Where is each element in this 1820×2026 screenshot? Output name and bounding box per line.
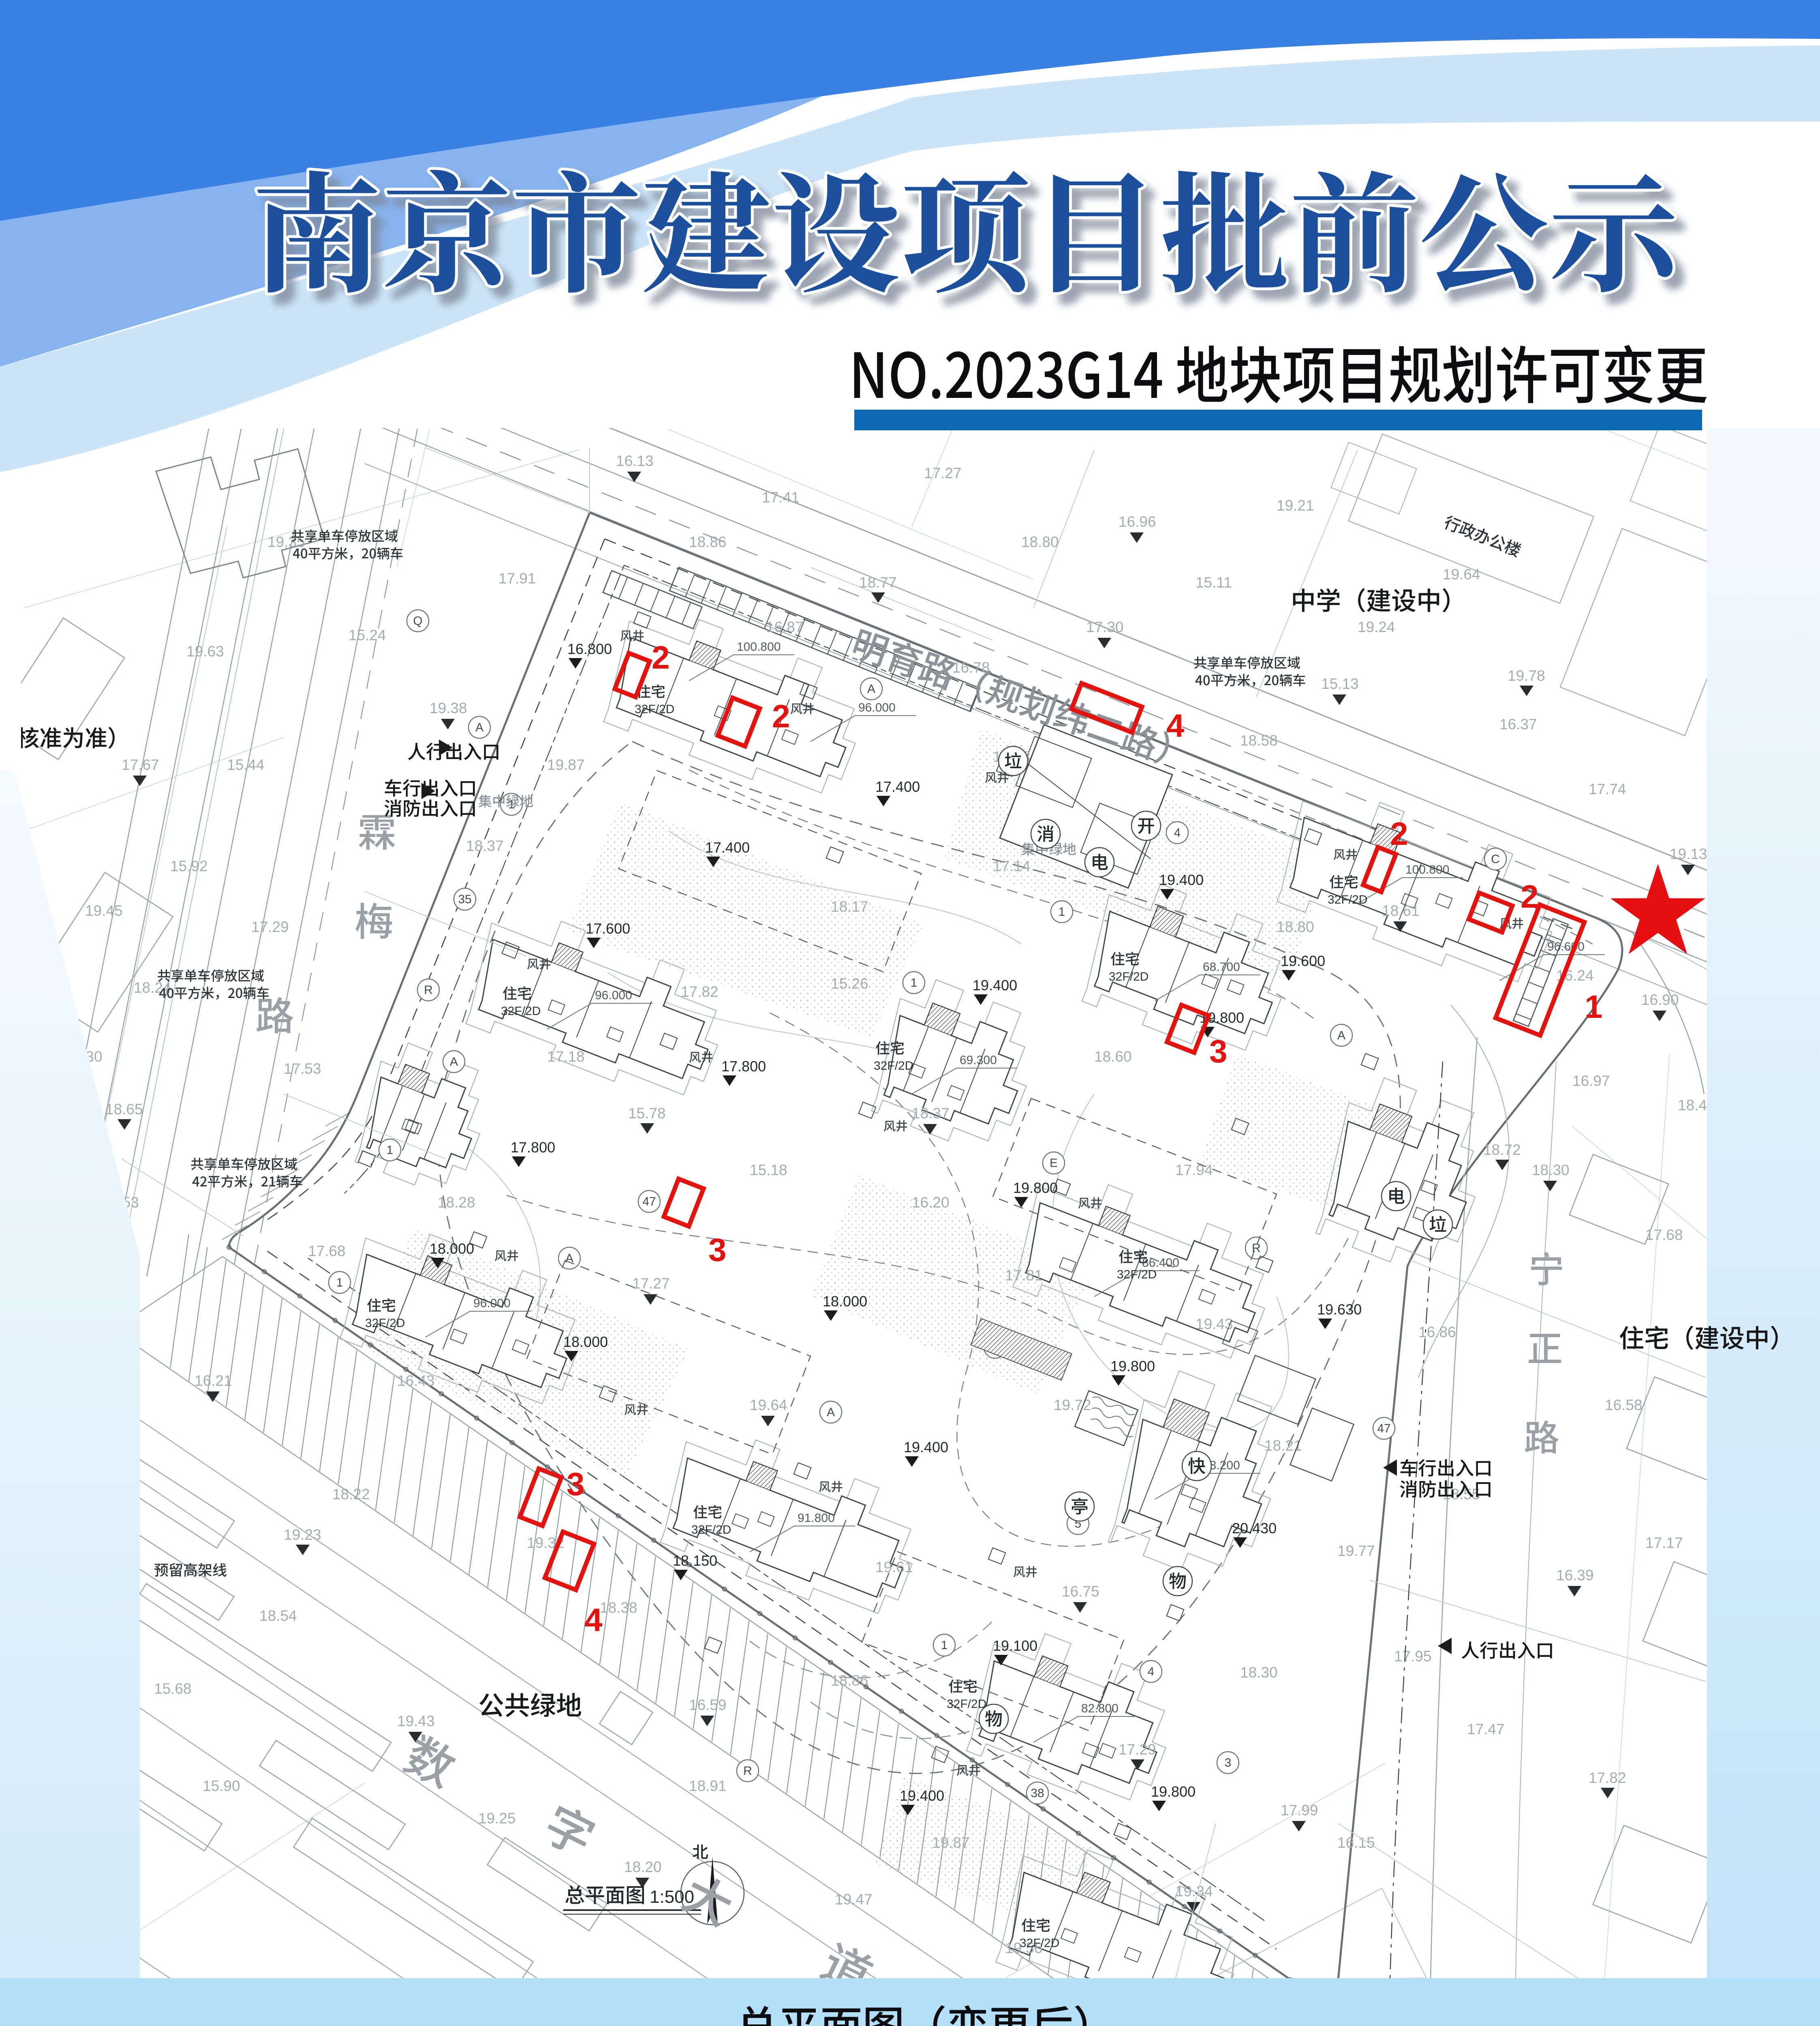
svg-text:3: 3: [1209, 1033, 1228, 1069]
svg-text:19.100: 19.100: [993, 1637, 1037, 1654]
svg-text:17.95: 17.95: [1394, 1648, 1432, 1665]
svg-text:17.14: 17.14: [993, 858, 1031, 874]
svg-text:3: 3: [1225, 1756, 1232, 1770]
svg-text:19.400: 19.400: [973, 977, 1017, 994]
svg-text:18.37: 18.37: [912, 1105, 950, 1122]
svg-text:32F/2D: 32F/2D: [635, 703, 674, 716]
svg-text:17.400: 17.400: [875, 778, 920, 795]
svg-text:17.41: 17.41: [762, 489, 800, 506]
svg-text:1: 1: [1585, 989, 1603, 1025]
svg-text:18.72: 18.72: [1483, 1141, 1521, 1158]
svg-text:18.24: 18.24: [134, 979, 171, 996]
svg-text:Q: Q: [413, 614, 422, 628]
svg-text:16.43: 16.43: [397, 1372, 435, 1389]
svg-text:4: 4: [584, 1602, 603, 1638]
svg-text:15.92: 15.92: [170, 858, 208, 874]
svg-text:16.58: 16.58: [1605, 1397, 1642, 1413]
svg-text:1: 1: [387, 1143, 394, 1157]
svg-text:A: A: [475, 721, 483, 734]
svg-text:1:500: 1:500: [650, 1887, 694, 1907]
svg-text:18.58: 18.58: [1240, 732, 1278, 749]
svg-text:18.80: 18.80: [1021, 534, 1059, 550]
svg-text:E: E: [1050, 1156, 1058, 1170]
svg-text:15.90: 15.90: [203, 1778, 240, 1794]
svg-text:18.37: 18.37: [466, 838, 504, 854]
svg-text:2: 2: [1521, 878, 1539, 915]
svg-text:32F/2D: 32F/2D: [947, 1697, 986, 1711]
svg-text:18.80: 18.80: [1277, 919, 1314, 935]
svg-text:47: 47: [1377, 1422, 1390, 1435]
svg-text:32F/2D: 32F/2D: [1328, 893, 1367, 906]
svg-text:17.27: 17.27: [924, 465, 962, 481]
svg-text:16.75: 16.75: [1062, 1583, 1099, 1600]
svg-text:17.81: 17.81: [1005, 1267, 1043, 1284]
svg-text:19.400: 19.400: [904, 1439, 948, 1455]
svg-text:100.800: 100.800: [737, 640, 781, 654]
svg-text:19.47: 19.47: [835, 1891, 873, 1908]
svg-text:A: A: [1337, 1029, 1345, 1042]
svg-text:1: 1: [336, 1276, 343, 1289]
svg-text:4: 4: [1148, 1665, 1155, 1678]
svg-text:16.87: 16.87: [766, 619, 804, 635]
svg-text:18.60: 18.60: [1094, 1048, 1132, 1065]
svg-text:19.61: 19.61: [875, 1559, 913, 1575]
svg-text:19.38: 19.38: [430, 700, 467, 716]
svg-text:16.15: 16.15: [1337, 1834, 1375, 1851]
svg-text:96.000: 96.000: [473, 1297, 511, 1310]
svg-text:32F/2D: 32F/2D: [1020, 1936, 1059, 1950]
svg-text:16.86: 16.86: [1418, 1324, 1456, 1340]
svg-text:96.000: 96.000: [858, 701, 896, 714]
svg-text:18.86: 18.86: [689, 534, 727, 550]
svg-text:19.800: 19.800: [1013, 1180, 1058, 1196]
svg-text:15.78: 15.78: [628, 1105, 666, 1122]
svg-text:17.68: 17.68: [1645, 1227, 1683, 1243]
svg-text:17.82: 17.82: [681, 983, 719, 1000]
svg-text:18.000: 18.000: [563, 1334, 608, 1350]
svg-text:20.430: 20.430: [1232, 1520, 1277, 1537]
svg-text:C: C: [1491, 853, 1500, 866]
svg-text:17.27: 17.27: [632, 1275, 670, 1292]
svg-text:18.30: 18.30: [1532, 1162, 1570, 1178]
svg-text:1: 1: [941, 1639, 948, 1652]
svg-text:16.13: 16.13: [616, 453, 654, 469]
svg-text:19.77: 19.77: [1337, 1543, 1375, 1559]
svg-text:2: 2: [1390, 816, 1408, 852]
svg-text:17.82: 17.82: [1589, 1770, 1626, 1786]
svg-text:32F/2D: 32F/2D: [1117, 1268, 1157, 1281]
svg-text:18.61: 18.61: [1382, 902, 1420, 919]
svg-text:32F/2D: 32F/2D: [1109, 970, 1148, 983]
svg-text:3: 3: [567, 1466, 585, 1502]
svg-text:A: A: [827, 1406, 835, 1419]
svg-text:16.20: 16.20: [912, 1194, 950, 1211]
svg-text:18.77: 18.77: [859, 574, 897, 591]
svg-text:18.30: 18.30: [1240, 1664, 1278, 1681]
svg-text:16.39: 16.39: [1556, 1567, 1594, 1584]
svg-text:4: 4: [1166, 707, 1185, 744]
svg-text:18.28: 18.28: [438, 1194, 475, 1211]
svg-text:17.29: 17.29: [251, 919, 289, 935]
svg-text:17.400: 17.400: [705, 839, 750, 856]
svg-text:19.600: 19.600: [1281, 953, 1325, 969]
svg-text:15.26: 15.26: [831, 975, 868, 992]
svg-text:18.000: 18.000: [430, 1240, 474, 1257]
svg-text:68.700: 68.700: [1203, 960, 1240, 974]
svg-text:18.86: 18.86: [831, 1672, 868, 1689]
svg-text:18.150: 18.150: [673, 1552, 717, 1569]
svg-text:18.000: 18.000: [823, 1293, 867, 1310]
svg-text:16.37: 16.37: [1499, 716, 1537, 733]
svg-text:17.800: 17.800: [511, 1139, 555, 1156]
svg-text:19.25: 19.25: [478, 1810, 516, 1827]
svg-text:47: 47: [642, 1195, 656, 1208]
svg-text:17.74: 17.74: [1589, 781, 1626, 797]
svg-text:18.17: 18.17: [831, 898, 868, 915]
svg-text:96.000: 96.000: [595, 989, 632, 1002]
svg-text:16.59: 16.59: [689, 1697, 727, 1713]
svg-text:17.47: 17.47: [1467, 1721, 1505, 1737]
svg-text:32F/2D: 32F/2D: [691, 1523, 731, 1537]
svg-text:32F/2D: 32F/2D: [874, 1059, 913, 1073]
svg-text:16.800: 16.800: [567, 641, 612, 657]
svg-text:19.87: 19.87: [932, 1834, 970, 1851]
svg-text:17.94: 17.94: [1175, 1162, 1213, 1178]
svg-text:82.800: 82.800: [1081, 1702, 1119, 1715]
svg-text:32F/2D: 32F/2D: [365, 1316, 405, 1330]
svg-text:17.30: 17.30: [1086, 619, 1124, 635]
svg-text:19.45: 19.45: [85, 902, 123, 919]
svg-text:19.35: 19.35: [267, 534, 305, 550]
svg-text:17.18: 17.18: [547, 1048, 585, 1065]
svg-text:19.800: 19.800: [1151, 1783, 1196, 1800]
svg-text:15.44: 15.44: [227, 757, 265, 773]
svg-text:19.34: 19.34: [1175, 1883, 1213, 1900]
svg-text:19.64: 19.64: [1443, 566, 1480, 583]
svg-text:17.600: 17.600: [586, 920, 630, 937]
svg-text:32F/2D: 32F/2D: [501, 1004, 541, 1018]
svg-text:16.90: 16.90: [1641, 992, 1679, 1008]
svg-text:38: 38: [1031, 1787, 1044, 1800]
svg-text:18.91: 18.91: [689, 1778, 727, 1794]
svg-text:15.24: 15.24: [349, 627, 386, 643]
svg-text:19.24: 19.24: [1358, 619, 1395, 635]
svg-text:R: R: [424, 983, 433, 997]
svg-text:19.21: 19.21: [1277, 497, 1314, 514]
svg-text:19.64: 19.64: [750, 1397, 787, 1413]
svg-text:16.97: 16.97: [1572, 1073, 1610, 1089]
svg-text:19.43: 19.43: [397, 1713, 435, 1729]
svg-text:2: 2: [772, 698, 790, 734]
svg-text:100.800: 100.800: [1405, 863, 1449, 876]
svg-text:19.78: 19.78: [1508, 667, 1545, 684]
svg-text:15.13: 15.13: [1321, 675, 1359, 692]
svg-text:17.29: 17.29: [1119, 1741, 1156, 1758]
svg-text:1: 1: [911, 976, 917, 989]
svg-text:19.800: 19.800: [1110, 1358, 1155, 1374]
svg-text:19.13: 19.13: [1670, 846, 1707, 862]
svg-text:1: 1: [1059, 905, 1065, 919]
svg-text:16.21: 16.21: [195, 1372, 232, 1389]
svg-text:19.400: 19.400: [900, 1787, 944, 1804]
svg-text:16.96: 16.96: [1119, 513, 1156, 530]
svg-text:R: R: [743, 1764, 752, 1778]
svg-text:19.630: 19.630: [1317, 1301, 1362, 1318]
svg-text:17.53: 17.53: [284, 1060, 321, 1077]
svg-text:15.68: 15.68: [154, 1680, 192, 1697]
svg-text:4: 4: [1174, 826, 1181, 840]
svg-text:17.99: 17.99: [1281, 1802, 1318, 1819]
svg-text:15.11: 15.11: [1196, 574, 1232, 591]
svg-text:18.22: 18.22: [332, 1486, 370, 1502]
svg-text:2: 2: [652, 639, 670, 675]
svg-text:15.18: 15.18: [750, 1162, 787, 1178]
svg-text:19.63: 19.63: [186, 643, 224, 660]
svg-text:A: A: [867, 682, 875, 696]
svg-text:35: 35: [458, 893, 471, 906]
svg-text:A: A: [450, 1055, 458, 1069]
svg-text:18.38: 18.38: [600, 1599, 637, 1616]
svg-text:17.67: 17.67: [122, 757, 159, 773]
svg-text:18.21: 18.21: [1264, 1437, 1302, 1454]
svg-text:17.68: 17.68: [308, 1243, 346, 1259]
svg-text:19.23: 19.23: [284, 1526, 321, 1543]
svg-text:17.91: 17.91: [498, 570, 536, 587]
svg-text:17.17: 17.17: [1645, 1534, 1683, 1551]
svg-text:17.800: 17.800: [721, 1058, 766, 1075]
svg-text:19.400: 19.400: [1159, 872, 1204, 888]
svg-text:19.87: 19.87: [547, 757, 585, 773]
svg-text:69.300: 69.300: [960, 1054, 997, 1067]
svg-text:18.65: 18.65: [105, 1101, 143, 1118]
svg-text:16.78: 16.78: [952, 659, 990, 676]
svg-text:18.20: 18.20: [624, 1859, 662, 1875]
svg-text:91.800: 91.800: [798, 1511, 835, 1525]
svg-text:18.54: 18.54: [259, 1607, 297, 1624]
svg-text:3: 3: [708, 1232, 727, 1268]
